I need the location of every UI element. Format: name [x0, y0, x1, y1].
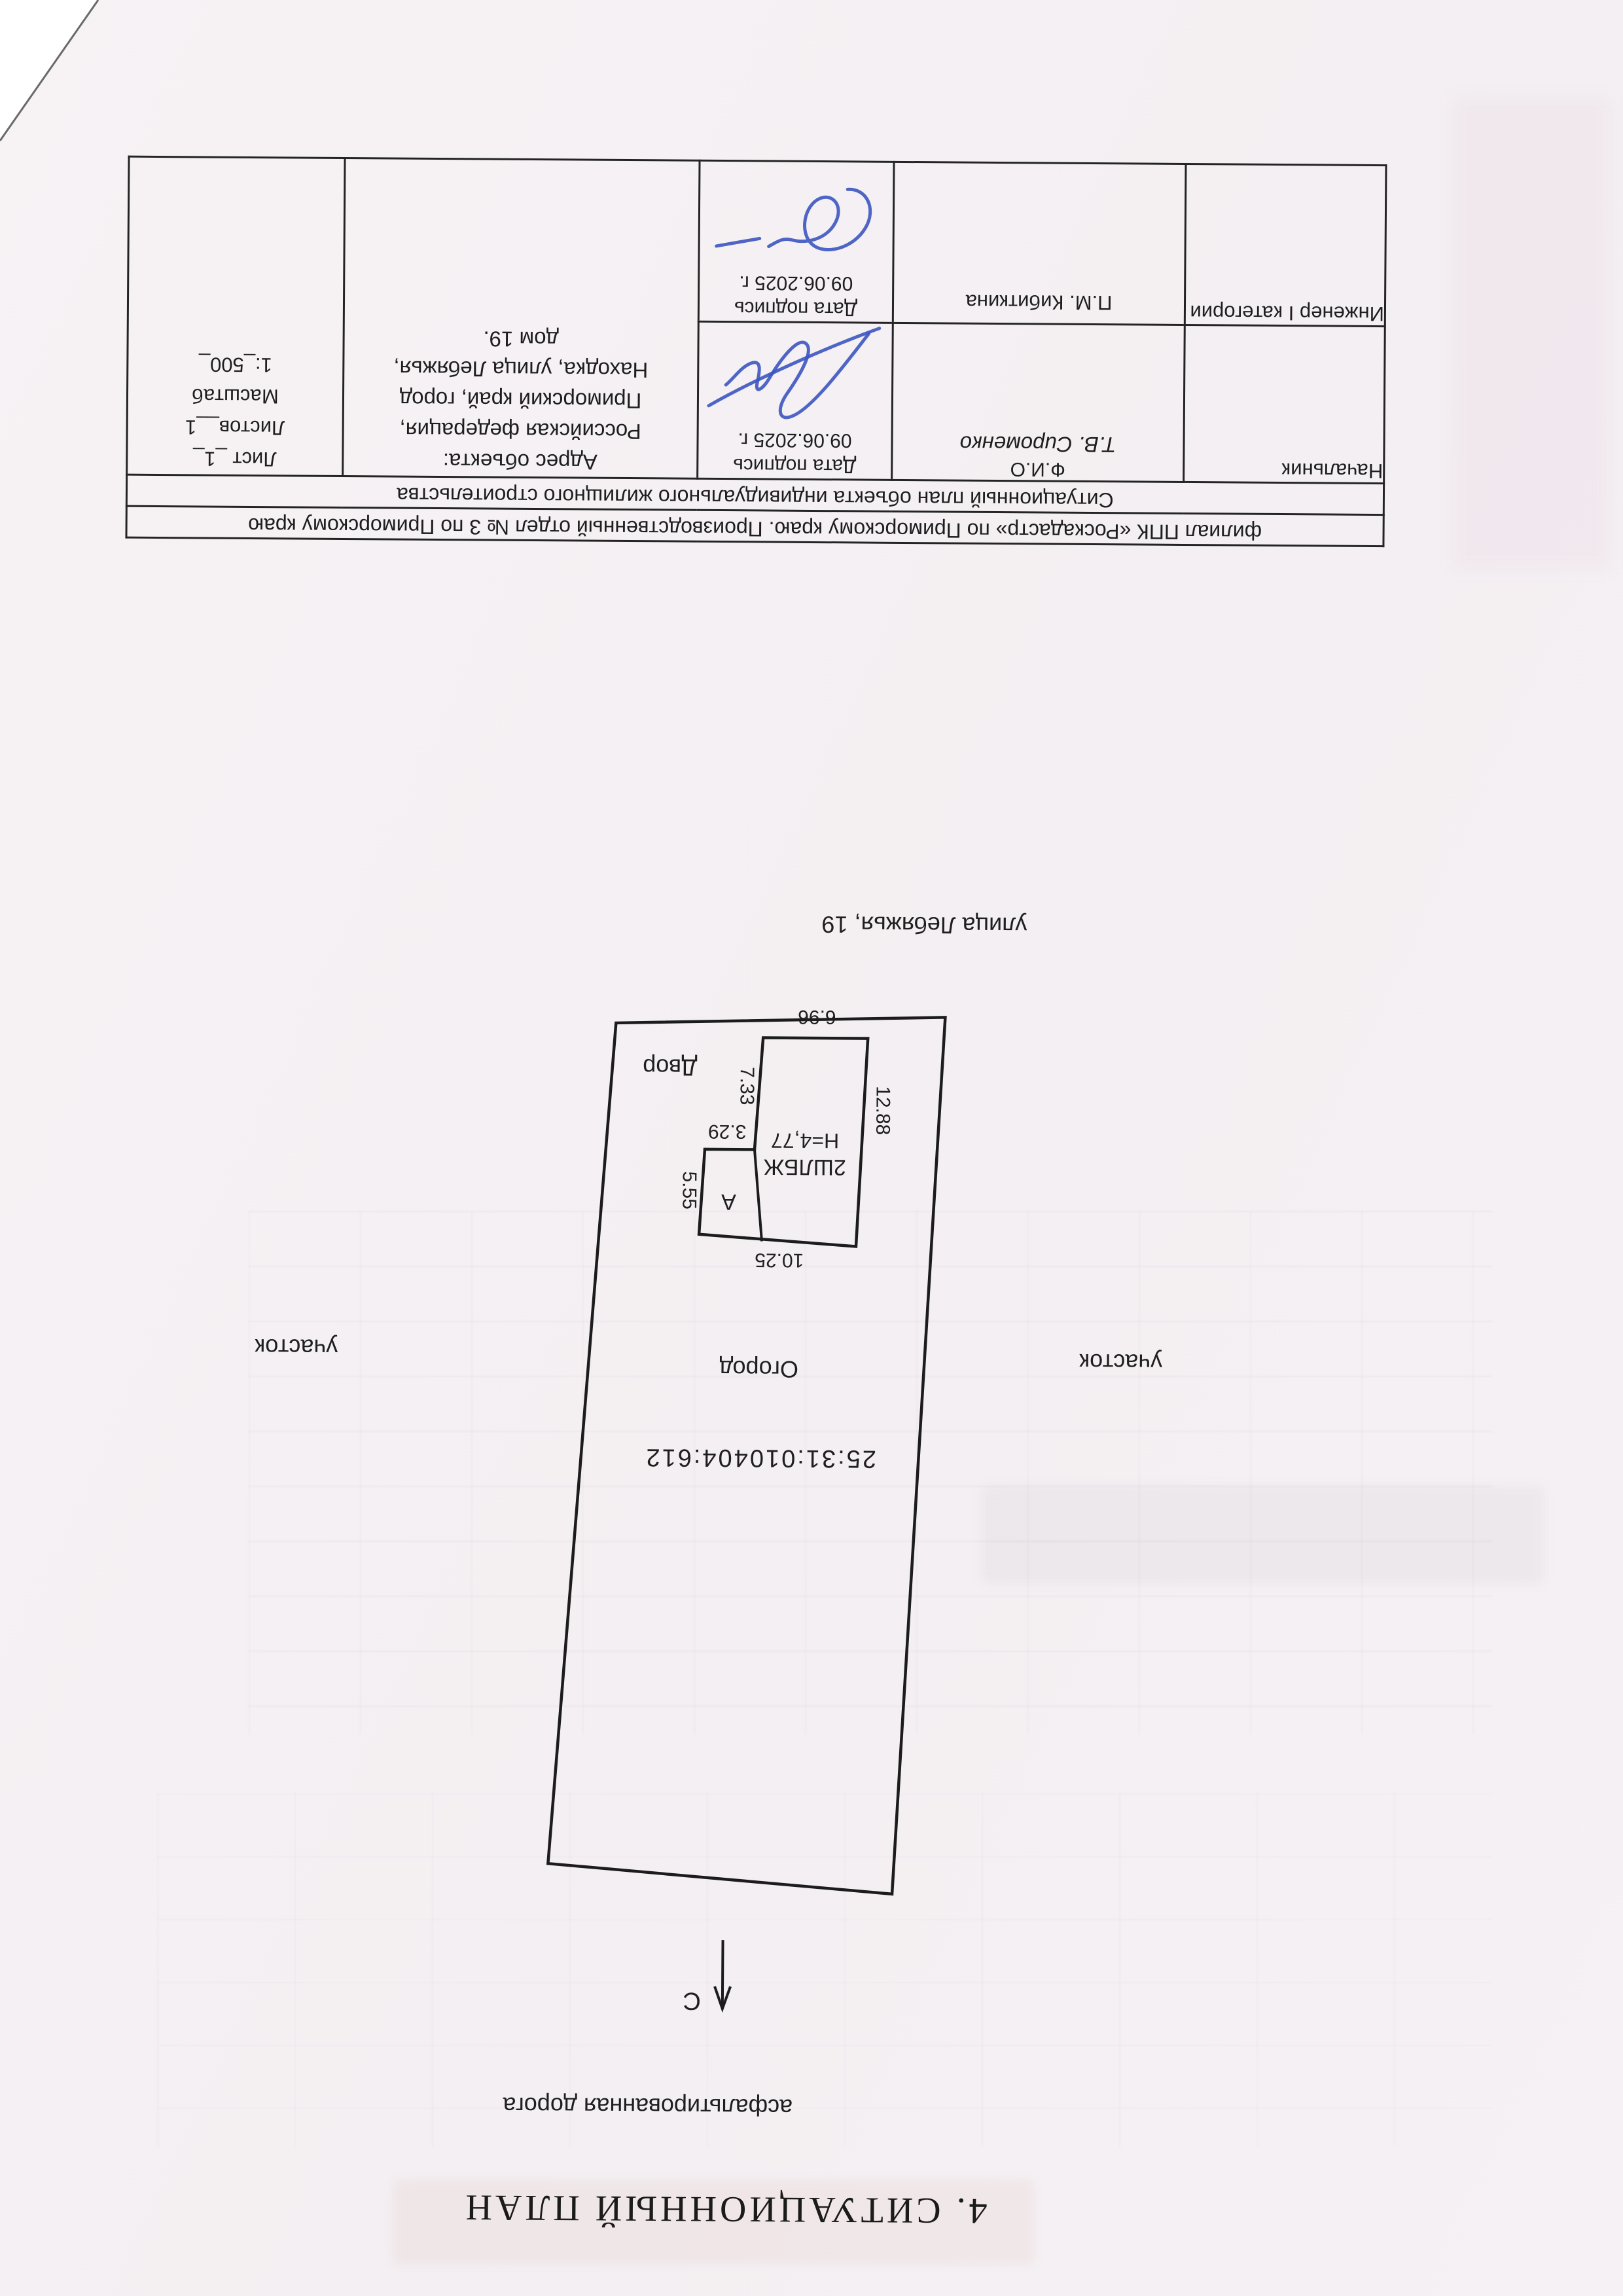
- dimension-right-upper: 5.55: [678, 1171, 700, 1210]
- scale-label: Масштаб: [128, 380, 342, 412]
- north-arrow-icon: [715, 1940, 731, 2009]
- dimension-right-lower: 7.33: [736, 1067, 757, 1105]
- address-line: Находка, улица Лебяжья,: [344, 353, 697, 386]
- date-value: 09.06.2025 г.: [698, 427, 891, 454]
- building-internal-wall: [754, 1149, 762, 1241]
- scale-value: 1:_500_: [128, 348, 342, 380]
- fio-cell: Ф.И.О Т.В. Сироменко: [892, 323, 1185, 482]
- sheet-number: Лист _1_: [128, 442, 342, 475]
- signature-chief: [704, 325, 887, 424]
- dimension-left: 12.88: [872, 1086, 894, 1135]
- road-label: асфальтированная дорога: [502, 2092, 793, 2121]
- sheet-scale-cell: Лист _1_ Листов__1 Масштаб 1:_500_: [127, 156, 345, 476]
- cadastral-number: 25:31:010404:612: [644, 1443, 876, 1472]
- garden-label: Огород: [719, 1355, 798, 1383]
- north-label: С: [683, 1987, 701, 2015]
- fio-value: П.М. Кибиткина: [894, 289, 1184, 315]
- address-label: Адрес объекта:: [344, 444, 696, 478]
- fio-cell: П.М. Кибиткина: [893, 162, 1186, 325]
- position-title: Инженер I категории: [1185, 164, 1386, 326]
- dimension-top: 10.25: [755, 1249, 804, 1271]
- address-line: дом 19.: [344, 322, 697, 355]
- date-label: Дата подпись: [698, 452, 891, 479]
- address-line: Приморский край, город: [344, 383, 697, 416]
- date-label: Дата подпись: [700, 295, 892, 322]
- page-title: 4. СИТУАЦИОННЫЙ ПЛАН: [450, 2186, 987, 2232]
- position-title: Начальник: [1184, 325, 1385, 483]
- annex-label: А: [721, 1189, 736, 1214]
- date-value: 09.06.2025 г.: [700, 270, 892, 296]
- object-address-cell: Адрес объекта: Российская федерация, При…: [343, 158, 700, 478]
- scanned-page: 4. СИТУАЦИОННЫЙ ПЛАН асфальтированная до…: [0, 0, 1623, 2296]
- building-type-label: 2ШЛБЖ: [764, 1154, 846, 1179]
- rotated-document-content: 4. СИТУАЦИОННЫЙ ПЛАН асфальтированная до…: [0, 0, 1623, 2296]
- yard-label: Двор: [643, 1054, 697, 1081]
- street-label: улица Лебяжья, 19: [821, 911, 1027, 939]
- scan-corner-artifact: [0, 0, 170, 196]
- signer-row-chief: Начальник Ф.И.О Т.В. Сироменко Дата подп…: [127, 317, 1385, 483]
- neighbor-parcel-label-right: участок: [255, 1334, 338, 1361]
- date-signature-cell: Дата подпись 09.06.2025 г.: [698, 321, 893, 480]
- dimension-step: 3.29: [708, 1121, 747, 1142]
- dimension-bottom: 6.96: [798, 1006, 836, 1028]
- date-signature-cell: Дата подпись 09.06.2025 г.: [698, 160, 894, 323]
- title-block-table: филиал ППК «Роскадастр» по Приморскому к…: [125, 156, 1387, 547]
- signature-engineer: [704, 168, 888, 267]
- building-height-label: Н=4,77: [771, 1129, 839, 1153]
- fio-value: Т.В. Сироменко: [893, 431, 1183, 457]
- address-line: Российская федерация,: [344, 414, 696, 447]
- neighbor-parcel-label-left: участок: [1079, 1349, 1162, 1376]
- site-plan-drawing: асфальтированная дорога С 25:31:010404:6…: [143, 819, 1232, 2168]
- sheet-count: Листов__1: [128, 411, 342, 444]
- fio-label: Ф.И.О: [893, 457, 1183, 481]
